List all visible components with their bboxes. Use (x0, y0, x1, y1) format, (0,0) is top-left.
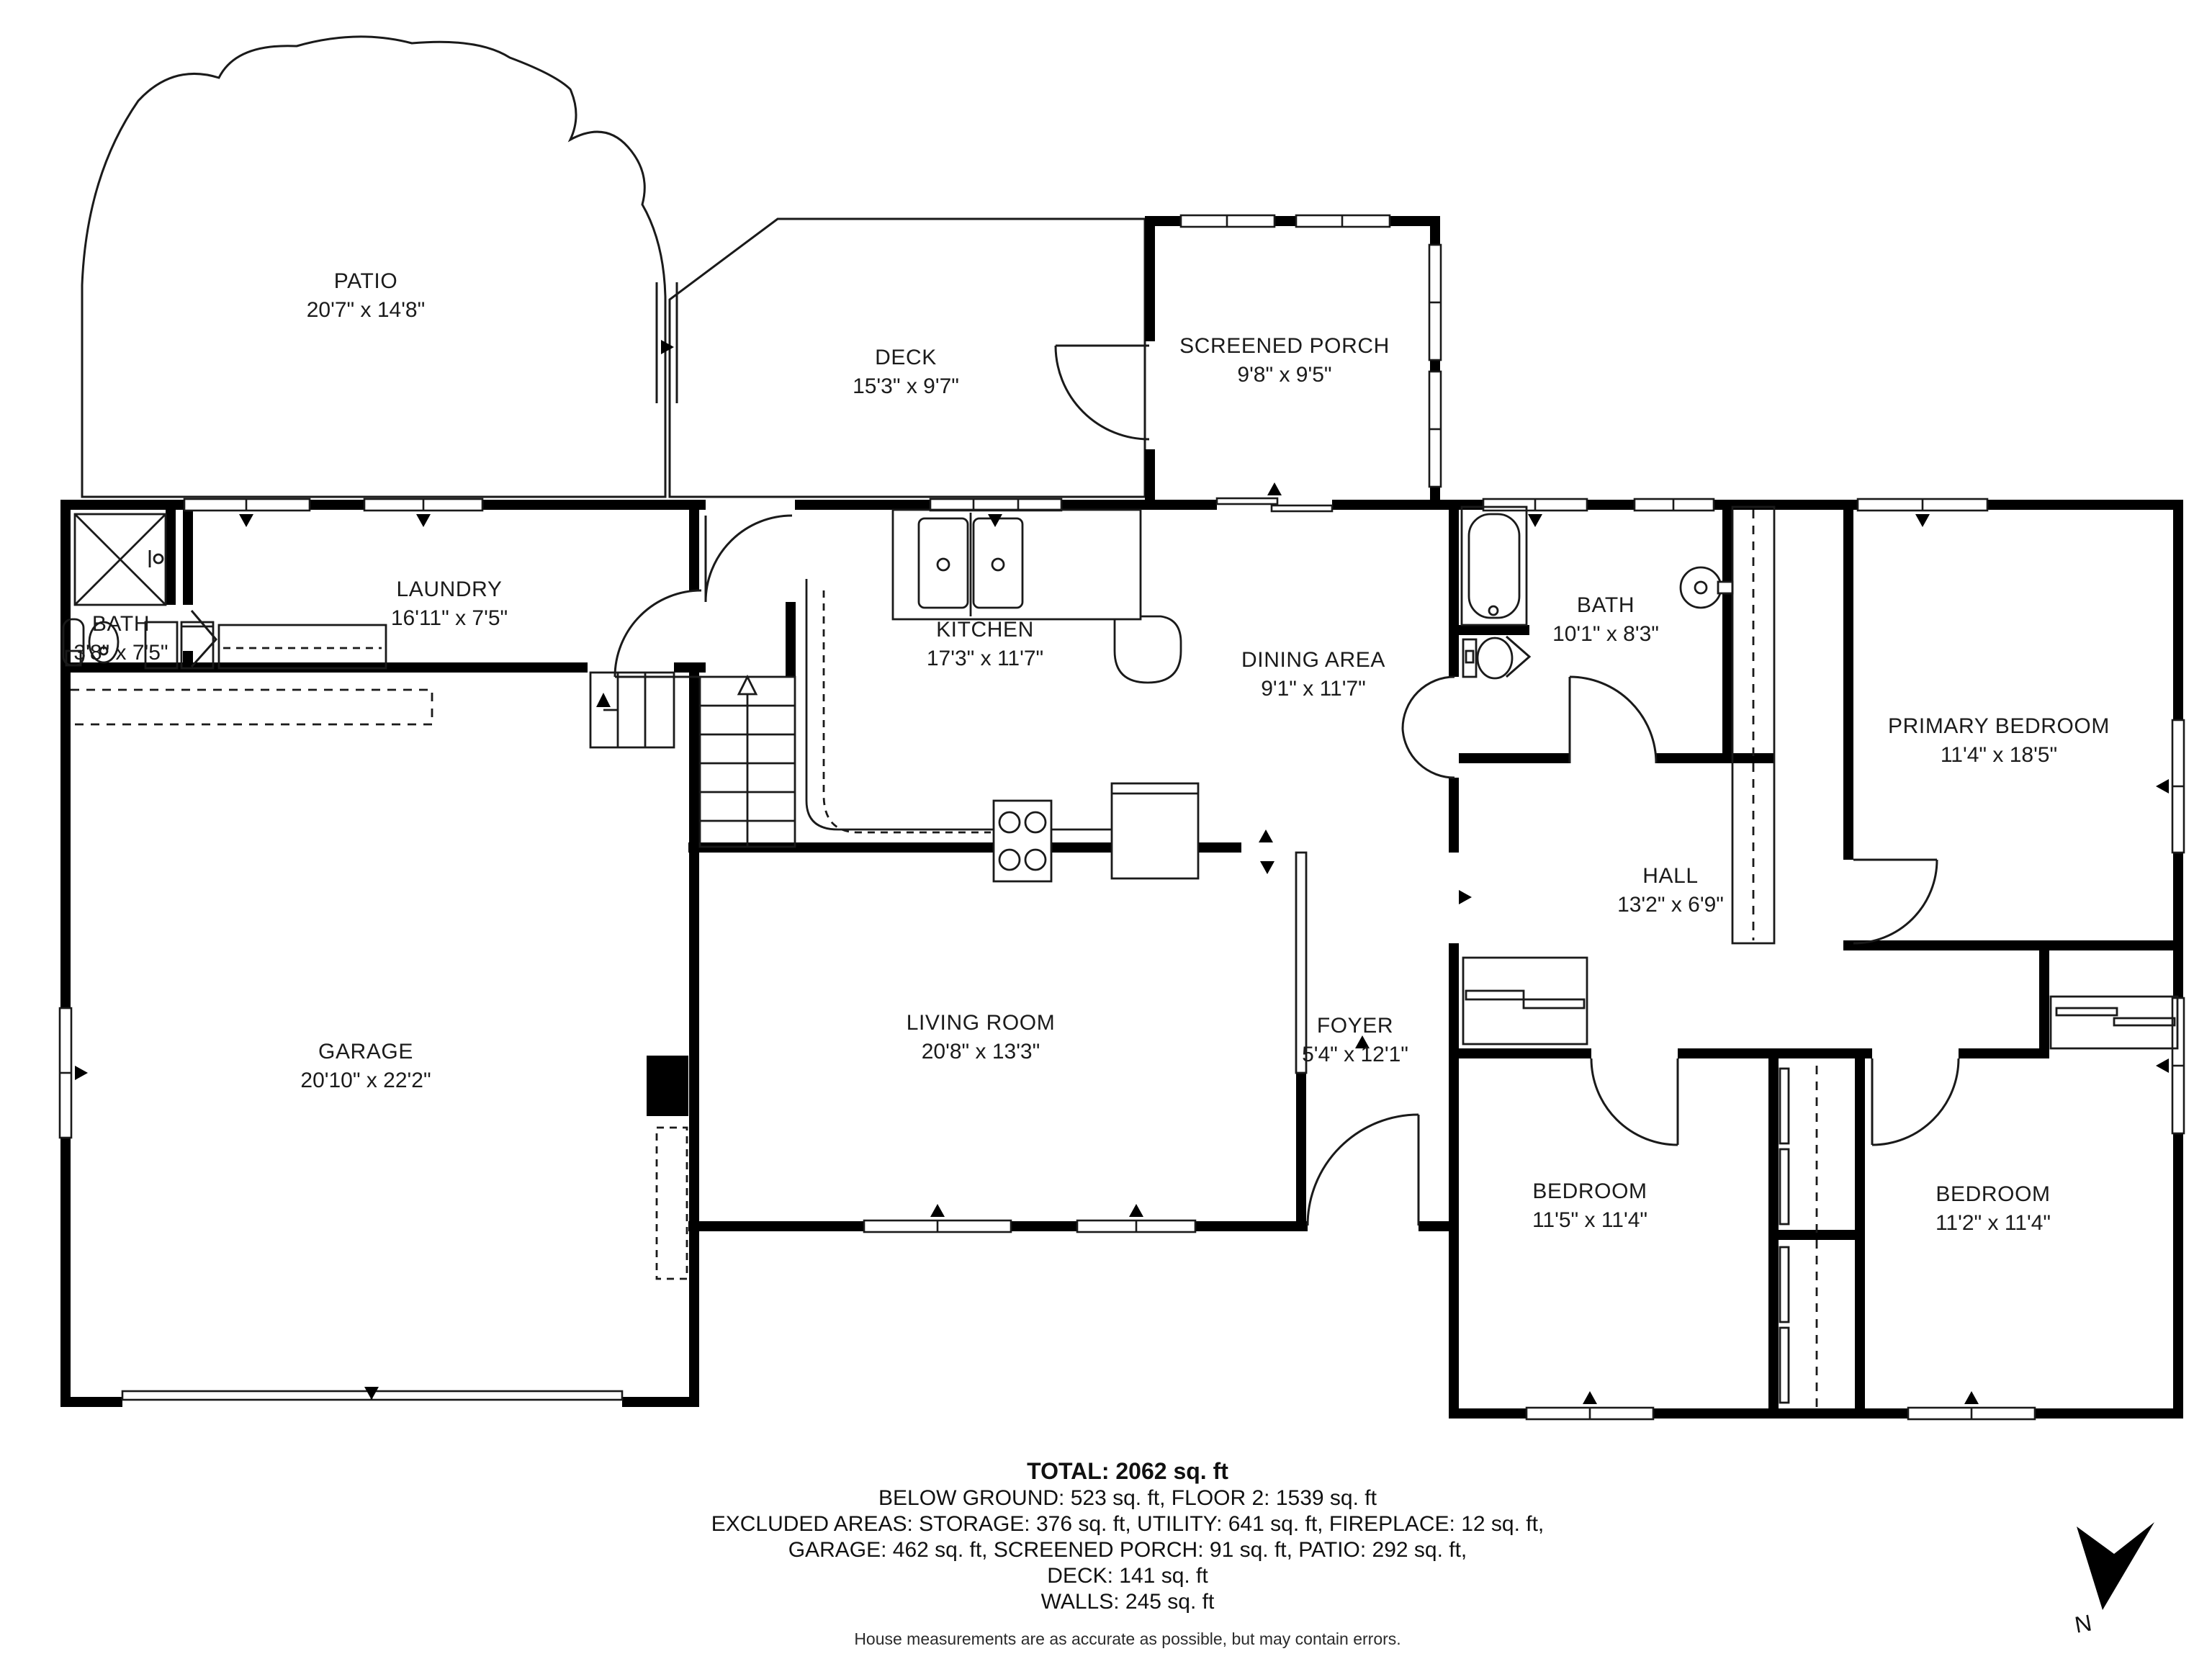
closet (1732, 507, 1774, 943)
area-summary: TOTAL: 2062 sq. ft BELOW GROUND: 523 sq.… (711, 1460, 1545, 1616)
north-arrow-icon (2077, 1522, 2154, 1610)
window (1077, 1220, 1195, 1232)
closet (2051, 997, 2177, 1048)
room-label-living-room: LIVING ROOM20'8" x 13'3" (907, 1010, 1056, 1067)
window (60, 1008, 71, 1138)
summary-line: BELOW GROUND: 523 sq. ft, FLOOR 2: 1539 … (711, 1486, 1545, 1512)
disclaimer-text: House measurements are as accurate as po… (854, 1632, 1401, 1649)
summary-line: DECK: 141 sq. ft (711, 1564, 1545, 1590)
door-arc (1853, 860, 1937, 943)
room-label-hall: HALL13'2" x 6'9" (1617, 863, 1724, 920)
door-arc (706, 516, 792, 602)
patio-gate (657, 282, 677, 403)
door-arc (1308, 1115, 1419, 1226)
window (1483, 499, 1587, 511)
window (930, 499, 1061, 511)
door-arc (1591, 1058, 1678, 1145)
floor-plan-page: PATIO20'7" x 14'8" DECK15'3" x 9'7" SCRE… (0, 0, 2212, 1659)
window (1429, 245, 1441, 360)
window (2172, 720, 2184, 853)
doors (192, 346, 1959, 1226)
room-label-screened-porch: SCREENED PORCH9'8" x 9'5" (1179, 333, 1390, 390)
room-label-primary-bedroom: PRIMARY BEDROOM11'4" x 18'5" (1888, 713, 2110, 770)
summary-line: WALLS: 245 sq. ft (711, 1590, 1545, 1616)
room-label-kitchen: KITCHEN17'3" x 11'7" (927, 616, 1043, 674)
window (1296, 215, 1390, 227)
room-label-bath: BATH10'1" x 8'3" (1552, 592, 1659, 649)
summary-total: TOTAL: 2062 sq. ft (711, 1460, 1545, 1486)
outdoor-outlines (82, 37, 1145, 497)
shower (75, 514, 166, 605)
laundry-counter (219, 625, 386, 668)
door-arc (1872, 1058, 1959, 1145)
window (184, 499, 310, 511)
room-label-dining-area: DINING AREA9'1" x 11'7" (1241, 647, 1385, 704)
fireplace-dashed-outline (657, 1128, 687, 1279)
summary-line: EXCLUDED AREAS: STORAGE: 376 sq. ft, UTI… (711, 1512, 1545, 1538)
window (1527, 1408, 1653, 1419)
room-label-garage: GARAGE20'10" x 22'2" (300, 1038, 431, 1096)
door-arc (1056, 346, 1149, 439)
garage-steps (590, 673, 674, 747)
floor-plan-drawing (0, 0, 2212, 1659)
window (364, 499, 482, 511)
room-label-laundry: LAUNDRY16'11" x 7'5" (391, 576, 508, 634)
window (1908, 1408, 2035, 1419)
fireplace (647, 1056, 688, 1116)
closet (1463, 958, 1587, 1044)
window (1429, 372, 1441, 487)
patio-outline (82, 37, 665, 497)
toilet (1463, 638, 1512, 678)
room-label-deck: DECK15'3" x 9'7" (853, 344, 959, 402)
room-label-bedroom-2: BEDROOM11'2" x 11'4" (1935, 1181, 2051, 1238)
room-label-bedroom-1: BEDROOM11'5" x 11'4" (1532, 1178, 1647, 1236)
window (1858, 499, 1987, 511)
window (1181, 215, 1274, 227)
window (864, 1220, 1011, 1232)
summary-line: GARAGE: 462 sq. ft, SCREENED PORCH: 91 s… (711, 1538, 1545, 1564)
bathtub (1462, 507, 1527, 625)
double-door (1403, 677, 1455, 778)
stove (994, 801, 1051, 881)
room-label-foyer: FOYER5'4" x 12'1" (1302, 1012, 1408, 1070)
room-label-patio: PATIO20'7" x 14'8" (307, 268, 426, 325)
stairs (700, 677, 795, 847)
refrigerator (1112, 783, 1198, 878)
window (1635, 499, 1714, 511)
storage-dashed-outline (71, 690, 432, 724)
gate-arrow (661, 340, 674, 354)
room-label-bath-small: BATH3'8" x 7'5" (73, 611, 168, 668)
sliding-door (1217, 498, 1332, 511)
door-arc (1570, 677, 1656, 763)
bifold-door (1506, 637, 1529, 677)
